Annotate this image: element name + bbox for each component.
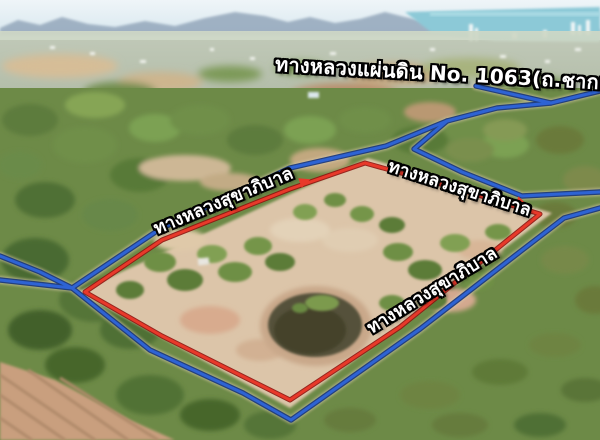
road-line-blue	[0, 86, 600, 420]
aerial-photo: ทางหลวงแผ่นดิน No. 1063(ถ.ชากแง้ว) ทางหล…	[0, 0, 600, 440]
road-line-southeast	[72, 208, 600, 420]
road-line-shadow	[0, 86, 600, 420]
